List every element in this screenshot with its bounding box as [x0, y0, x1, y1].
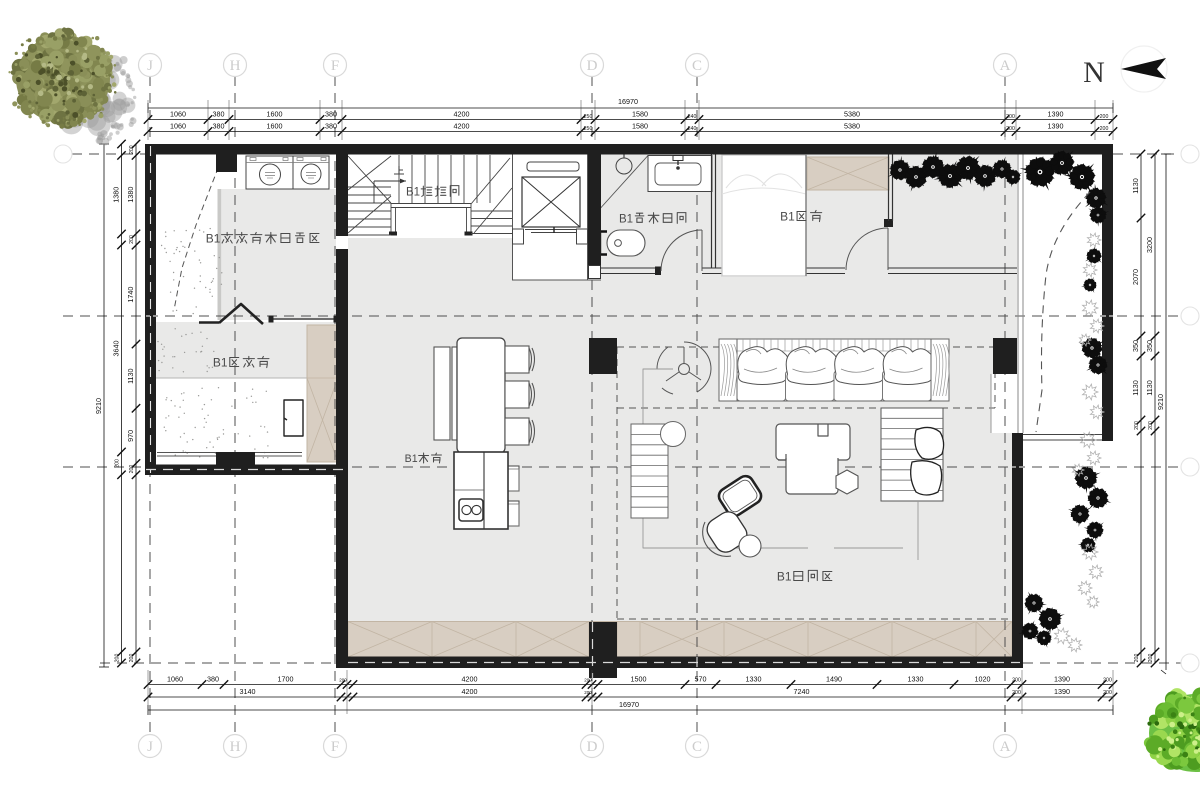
- svg-text:9210: 9210: [1156, 394, 1165, 410]
- svg-text:4200: 4200: [454, 122, 470, 131]
- svg-text:1700: 1700: [278, 675, 294, 684]
- svg-text:240: 240: [688, 114, 697, 120]
- svg-text:1020: 1020: [975, 675, 991, 684]
- svg-text:200: 200: [1012, 690, 1021, 696]
- svg-text:1390: 1390: [1048, 122, 1064, 131]
- svg-text:1060: 1060: [170, 122, 186, 131]
- svg-text:A: A: [1000, 739, 1011, 755]
- svg-text:350: 350: [1131, 340, 1140, 352]
- svg-text:1130: 1130: [1145, 380, 1154, 395]
- svg-text:B1: B1: [619, 214, 633, 226]
- svg-text:1060: 1060: [167, 675, 183, 684]
- svg-text:9210: 9210: [94, 398, 103, 414]
- svg-text:350: 350: [1145, 340, 1154, 352]
- svg-text:380: 380: [213, 122, 225, 131]
- svg-text:250: 250: [584, 126, 593, 132]
- svg-text:7240: 7240: [794, 687, 810, 696]
- svg-text:F: F: [331, 739, 339, 755]
- svg-text:200: 200: [129, 145, 135, 154]
- svg-text:200: 200: [129, 235, 135, 244]
- svg-text:N: N: [1083, 56, 1105, 89]
- svg-text:B1: B1: [406, 187, 420, 199]
- svg-text:1390: 1390: [1054, 687, 1070, 696]
- svg-text:D: D: [587, 739, 598, 755]
- svg-text:1500: 1500: [631, 675, 647, 684]
- svg-text:C: C: [692, 58, 702, 74]
- svg-text:5380: 5380: [844, 122, 860, 131]
- svg-text:1380: 1380: [126, 187, 135, 203]
- svg-text:H: H: [230, 58, 241, 74]
- svg-text:200: 200: [115, 654, 121, 663]
- svg-text:4200: 4200: [462, 675, 478, 684]
- svg-text:J: J: [147, 58, 153, 74]
- svg-text:200: 200: [1148, 654, 1154, 663]
- svg-text:240: 240: [688, 126, 697, 132]
- svg-text:B1: B1: [780, 210, 795, 224]
- svg-text:B1: B1: [777, 570, 792, 584]
- svg-text:1390: 1390: [1048, 110, 1064, 119]
- svg-text:16970: 16970: [619, 700, 639, 709]
- svg-text:200: 200: [1006, 114, 1015, 120]
- svg-text:1580: 1580: [632, 110, 648, 119]
- svg-text:200: 200: [584, 678, 592, 683]
- svg-text:200: 200: [1100, 126, 1109, 132]
- svg-text:970: 970: [126, 430, 135, 442]
- svg-text:1130: 1130: [126, 368, 135, 383]
- svg-text:3640: 3640: [112, 341, 121, 357]
- svg-text:1600: 1600: [267, 122, 283, 131]
- svg-text:200: 200: [1100, 114, 1109, 120]
- svg-text:1130: 1130: [1131, 178, 1140, 193]
- svg-text:1490: 1490: [826, 675, 842, 684]
- svg-text:1580: 1580: [632, 122, 648, 131]
- svg-text:F: F: [331, 58, 339, 74]
- svg-text:4200: 4200: [454, 110, 470, 119]
- svg-text:1330: 1330: [746, 675, 762, 684]
- svg-text:570: 570: [695, 675, 707, 684]
- svg-text:250: 250: [584, 114, 593, 120]
- svg-text:1060: 1060: [170, 110, 186, 119]
- svg-text:1330: 1330: [908, 675, 924, 684]
- svg-text:3140: 3140: [240, 687, 256, 696]
- svg-text:1600: 1600: [267, 110, 283, 119]
- svg-text:380: 380: [207, 675, 219, 684]
- svg-text:1740: 1740: [126, 287, 135, 303]
- svg-text:B1: B1: [206, 232, 221, 246]
- svg-text:200: 200: [129, 465, 135, 474]
- svg-text:200: 200: [115, 459, 121, 468]
- svg-text:200: 200: [1103, 690, 1112, 696]
- svg-text:1380: 1380: [112, 187, 121, 203]
- svg-text:J: J: [147, 739, 153, 755]
- svg-text:H: H: [230, 739, 241, 755]
- svg-text:200: 200: [1103, 678, 1112, 684]
- svg-text:D: D: [587, 58, 598, 74]
- svg-text:3200: 3200: [1145, 237, 1154, 253]
- svg-text:B1: B1: [405, 453, 418, 465]
- svg-text:200: 200: [129, 654, 135, 663]
- svg-text:200: 200: [1134, 421, 1140, 430]
- svg-text:200: 200: [339, 678, 347, 683]
- svg-text:380: 380: [325, 122, 337, 131]
- svg-text:1390: 1390: [1054, 675, 1070, 684]
- svg-text:200: 200: [1148, 421, 1154, 430]
- svg-text:380: 380: [213, 110, 225, 119]
- svg-text:B1: B1: [213, 356, 228, 370]
- svg-text:5380: 5380: [844, 110, 860, 119]
- svg-text:380: 380: [325, 110, 337, 119]
- svg-text:200: 200: [1006, 126, 1015, 132]
- svg-text:200: 200: [1134, 654, 1140, 663]
- svg-text:16970: 16970: [618, 97, 638, 106]
- svg-text:A: A: [1000, 58, 1011, 74]
- svg-text:2070: 2070: [1131, 269, 1140, 285]
- svg-text:4200: 4200: [462, 687, 478, 696]
- svg-text:200: 200: [1012, 678, 1021, 684]
- svg-text:C: C: [692, 739, 702, 755]
- svg-text:200: 200: [584, 690, 592, 695]
- svg-text:1130: 1130: [1131, 380, 1140, 395]
